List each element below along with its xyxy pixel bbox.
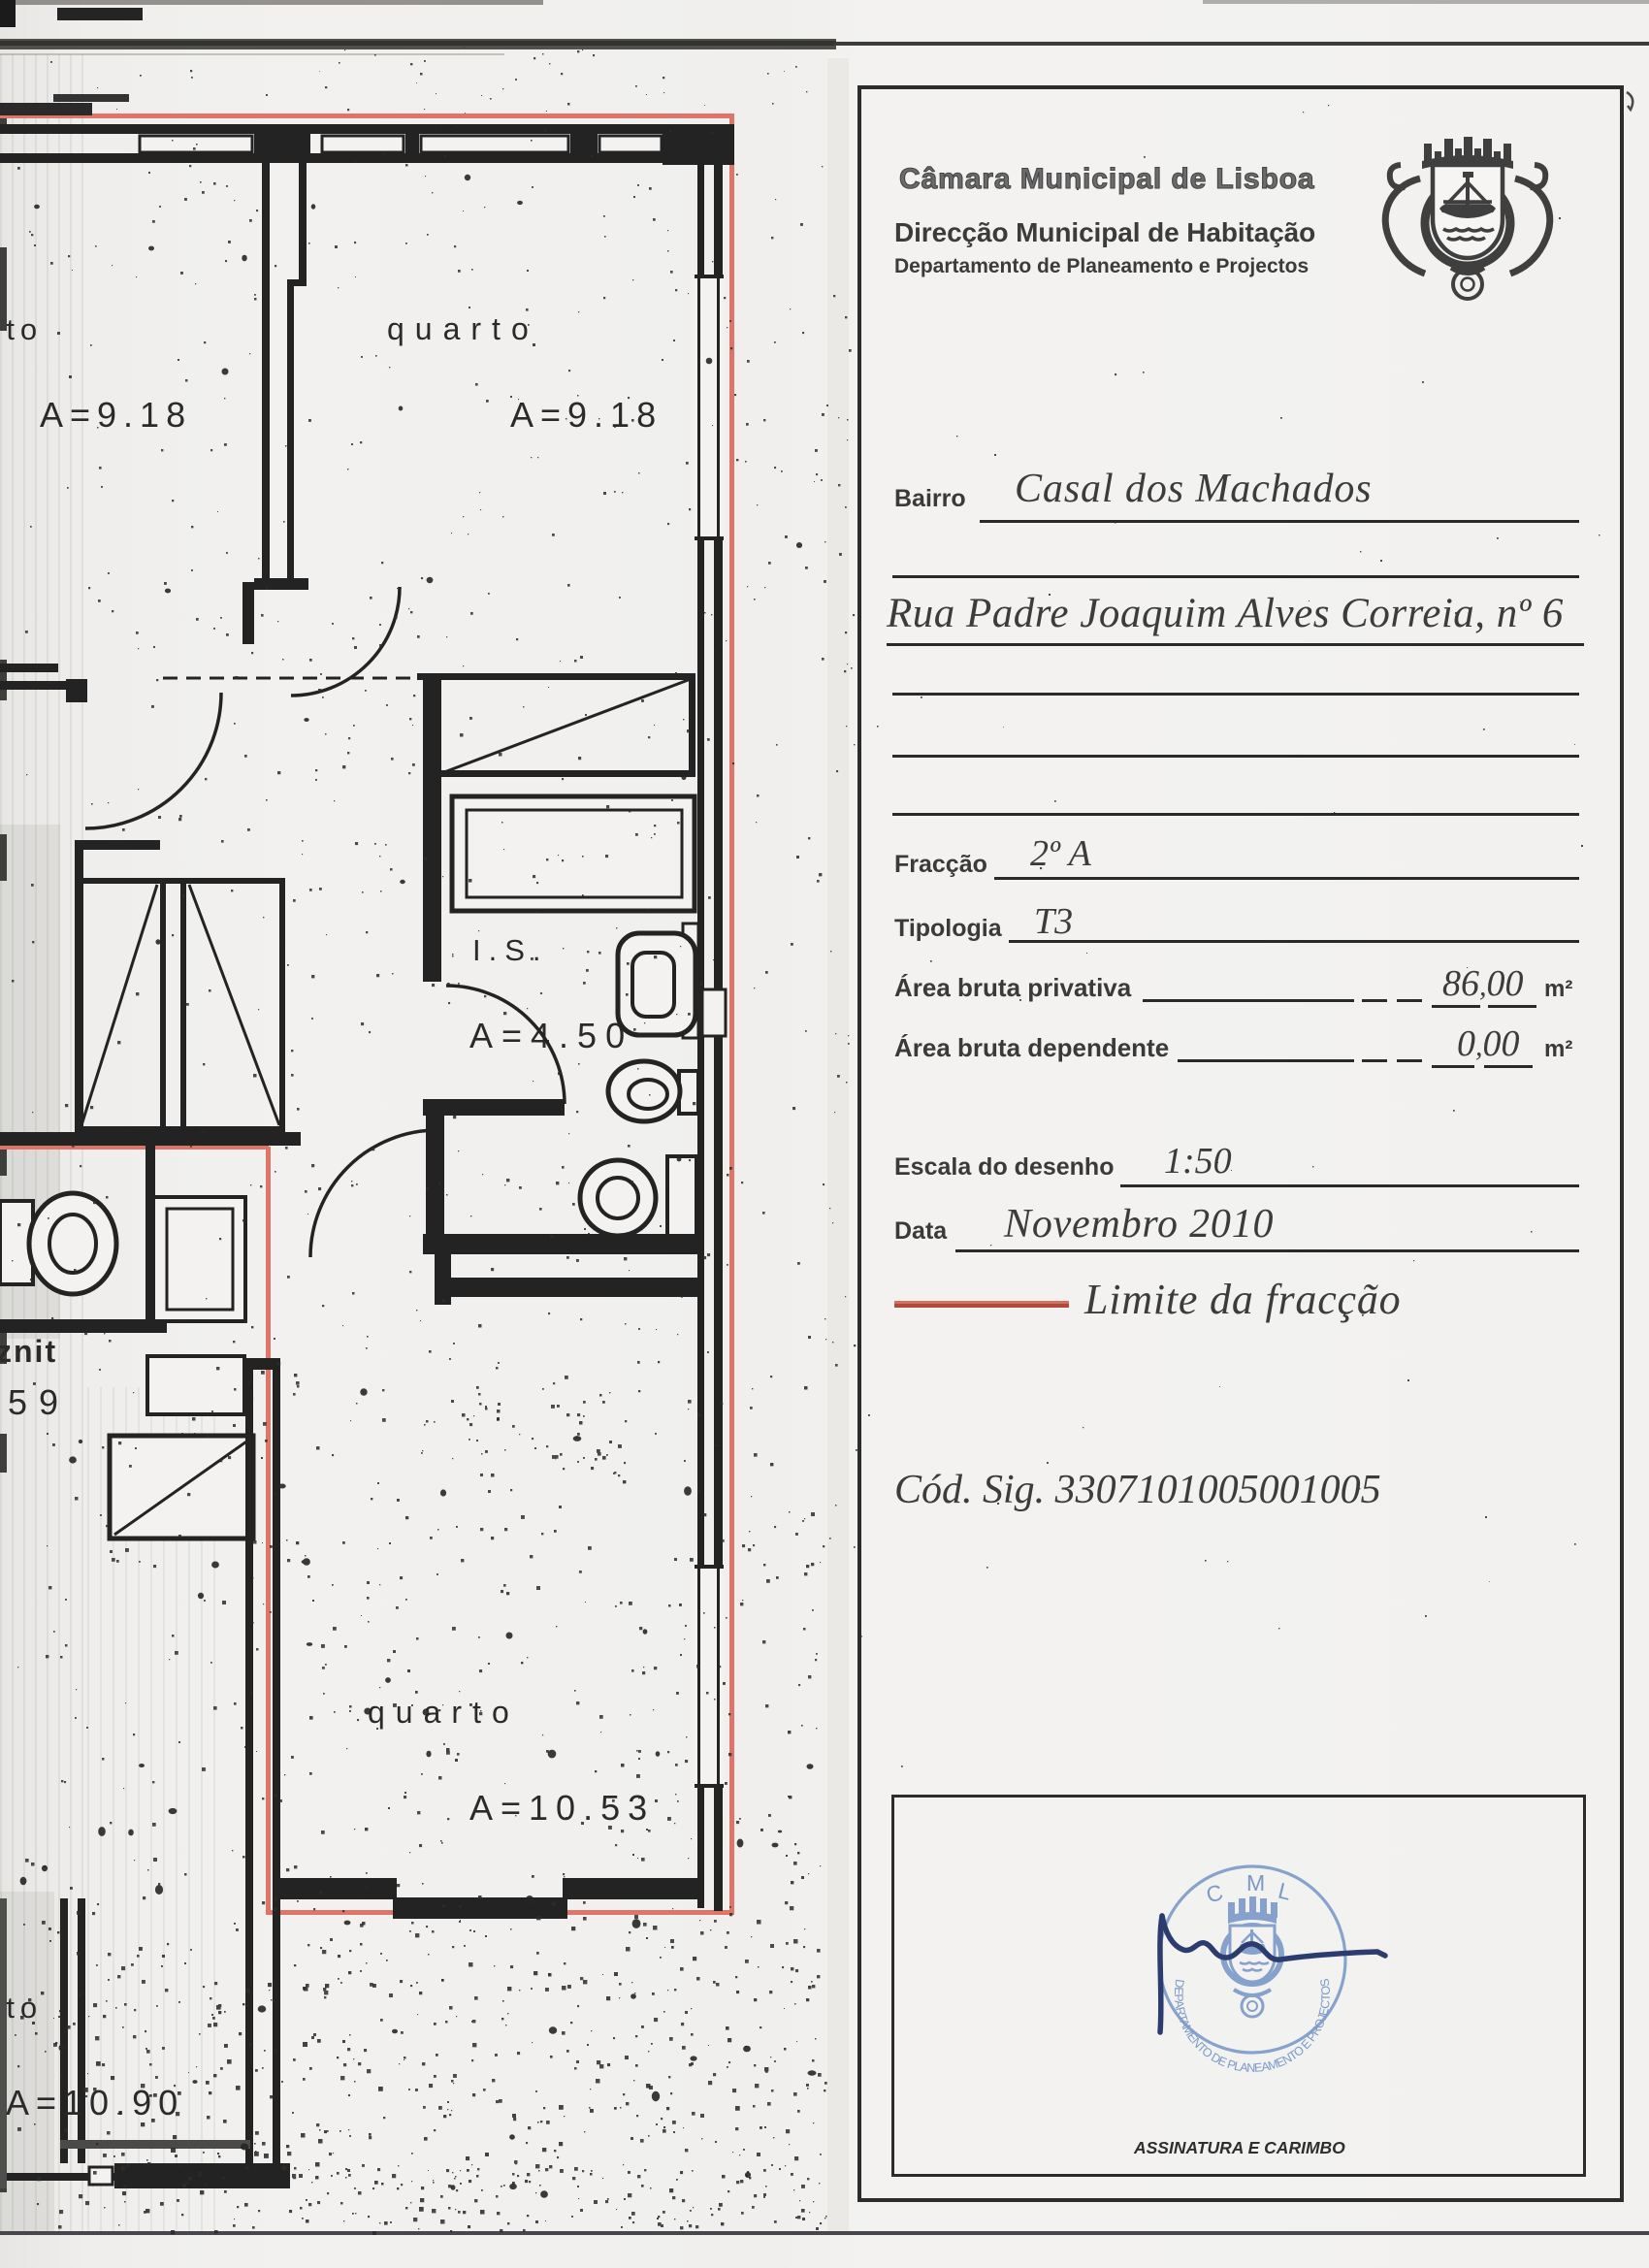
svg-text:quarto: quarto bbox=[387, 311, 539, 346]
svg-text:rto: rto bbox=[0, 312, 43, 346]
svg-text:rto: rto bbox=[0, 1991, 43, 2025]
svg-text:A=10.53: A=10.53 bbox=[469, 1788, 655, 1828]
svg-text:quarto: quarto bbox=[368, 1695, 520, 1730]
svg-text:DEPARTAMENTO DE PLANEAMENTO E: DEPARTAMENTO DE PLANEAMENTO E PROJECTOS bbox=[1172, 1977, 1333, 2075]
svg-text:A=9.18: A=9.18 bbox=[40, 395, 192, 435]
svg-text:A=9.18: A=9.18 bbox=[510, 395, 663, 435]
svg-text:L: L bbox=[1276, 1877, 1294, 1904]
svg-text:C: C bbox=[1203, 1879, 1225, 1908]
svg-text:I.S.: I.S. bbox=[472, 933, 549, 967]
svg-text:59: 59 bbox=[8, 1382, 70, 1422]
svg-text:M: M bbox=[1246, 1870, 1265, 1895]
svg-text:znit: znit bbox=[0, 1334, 57, 1369]
